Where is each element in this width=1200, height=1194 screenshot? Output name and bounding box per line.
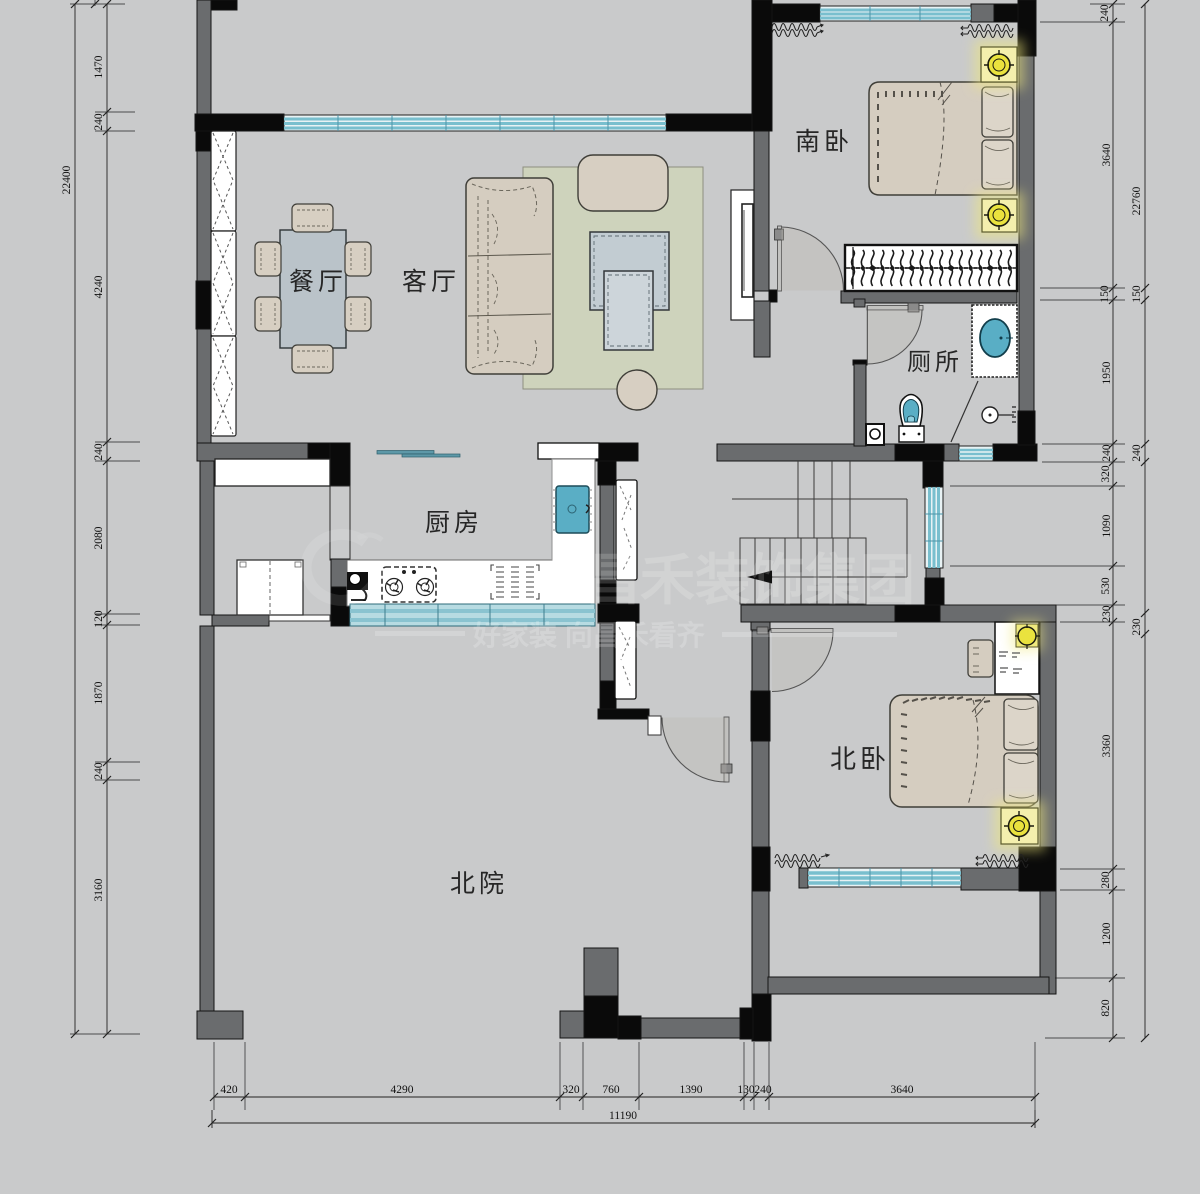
svg-text:北院: 北院 — [450, 870, 508, 898]
svg-text:北卧: 北卧 — [830, 745, 890, 774]
svg-text:760: 760 — [602, 1084, 620, 1096]
svg-text:820: 820 — [1100, 999, 1112, 1017]
svg-text:2080: 2080 — [93, 526, 105, 549]
svg-text:230: 230 — [1101, 605, 1113, 623]
svg-text:客厅: 客厅 — [402, 268, 460, 296]
svg-text:240: 240 — [1099, 4, 1111, 22]
svg-text:好家装 向昌禾看齐: 好家装 向昌禾看齐 — [472, 619, 706, 651]
svg-text:3160: 3160 — [93, 878, 105, 901]
svg-text:320: 320 — [562, 1084, 580, 1096]
svg-text:240: 240 — [1131, 444, 1143, 462]
svg-text:150: 150 — [1131, 285, 1143, 303]
svg-text:1200: 1200 — [1101, 922, 1113, 945]
svg-text:240: 240 — [93, 762, 105, 780]
svg-text:11190: 11190 — [609, 1110, 637, 1122]
svg-text:22760: 22760 — [1131, 186, 1143, 215]
svg-text:3640: 3640 — [891, 1084, 914, 1096]
svg-text:4240: 4240 — [93, 275, 105, 298]
svg-text:22400: 22400 — [61, 165, 73, 194]
svg-text:240: 240 — [1101, 444, 1113, 462]
svg-text:320: 320 — [1100, 465, 1112, 483]
svg-text:3360: 3360 — [1101, 734, 1113, 757]
svg-text:120: 120 — [93, 610, 105, 628]
svg-text:240: 240 — [754, 1084, 772, 1096]
svg-text:130: 130 — [737, 1084, 755, 1096]
svg-text:1090: 1090 — [1101, 514, 1113, 537]
svg-text:厕所: 厕所 — [907, 349, 963, 376]
svg-text:1390: 1390 — [680, 1084, 703, 1096]
svg-text:3640: 3640 — [1101, 143, 1113, 166]
svg-text:150: 150 — [1099, 285, 1111, 303]
svg-text:420: 420 — [220, 1084, 238, 1096]
svg-text:餐厅: 餐厅 — [289, 268, 347, 296]
svg-text:240: 240 — [93, 113, 105, 131]
svg-text:昌禾装饰集团: 昌禾装饰集团 — [585, 549, 915, 611]
svg-text:厨房: 厨房 — [425, 509, 483, 537]
svg-text:280: 280 — [1100, 871, 1112, 889]
svg-text:南卧: 南卧 — [795, 128, 853, 156]
svg-text:1470: 1470 — [93, 55, 105, 78]
svg-text:4290: 4290 — [391, 1084, 414, 1096]
svg-text:240: 240 — [93, 443, 105, 461]
svg-text:1950: 1950 — [1101, 361, 1113, 384]
svg-text:230: 230 — [1131, 618, 1143, 636]
svg-text:530: 530 — [1100, 577, 1112, 595]
svg-text:1870: 1870 — [93, 681, 105, 704]
